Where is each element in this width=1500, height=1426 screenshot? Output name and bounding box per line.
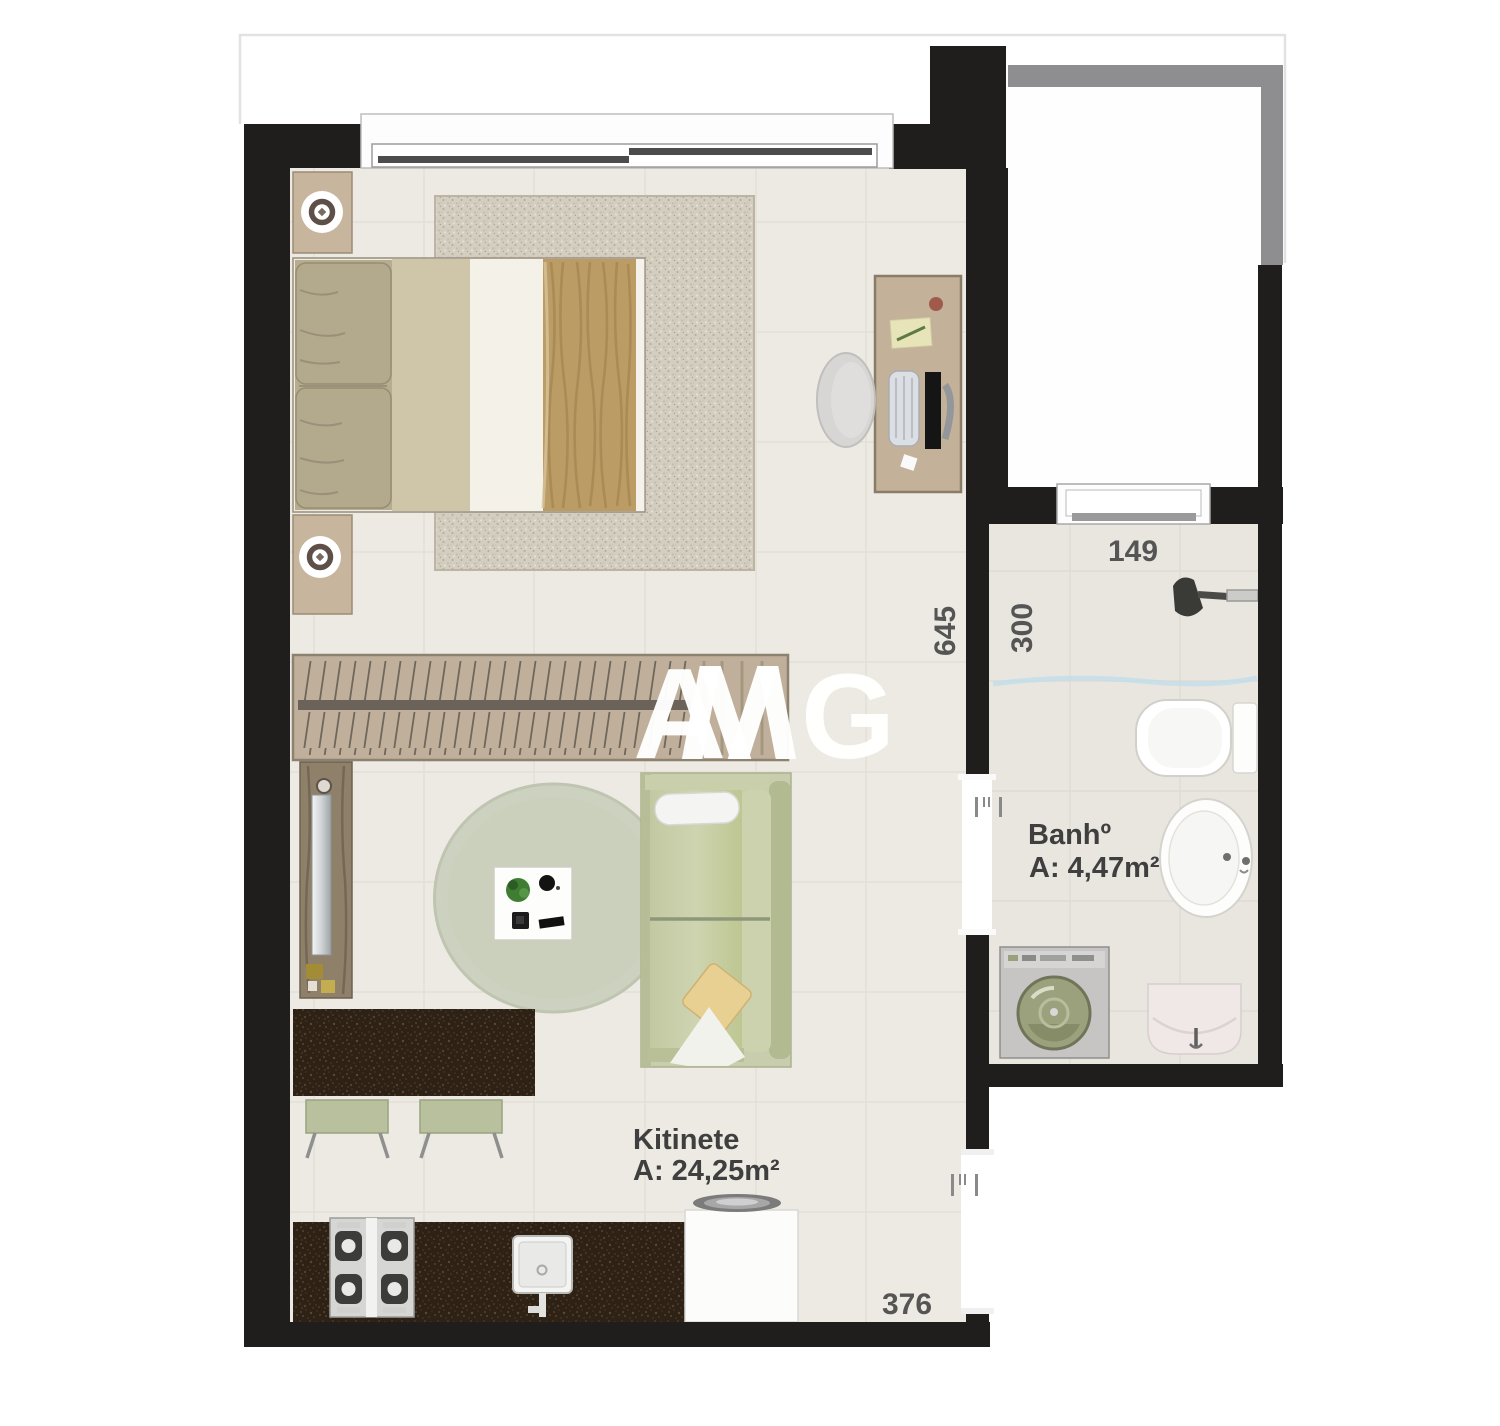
svg-text:645: 645 — [929, 606, 962, 656]
svg-text:A: 4,47m²: A: 4,47m² — [1029, 852, 1160, 884]
svg-text:A: 24,25m²: A: 24,25m² — [633, 1155, 780, 1187]
svg-text:A: A — [633, 642, 726, 786]
svg-text:G: G — [801, 648, 895, 784]
svg-text:149: 149 — [1108, 535, 1158, 568]
svg-text:Kitinete: Kitinete — [633, 1124, 739, 1156]
svg-text:Banhº: Banhº — [1028, 819, 1112, 851]
svg-text:376: 376 — [882, 1288, 932, 1321]
svg-text:300: 300 — [1006, 603, 1039, 653]
